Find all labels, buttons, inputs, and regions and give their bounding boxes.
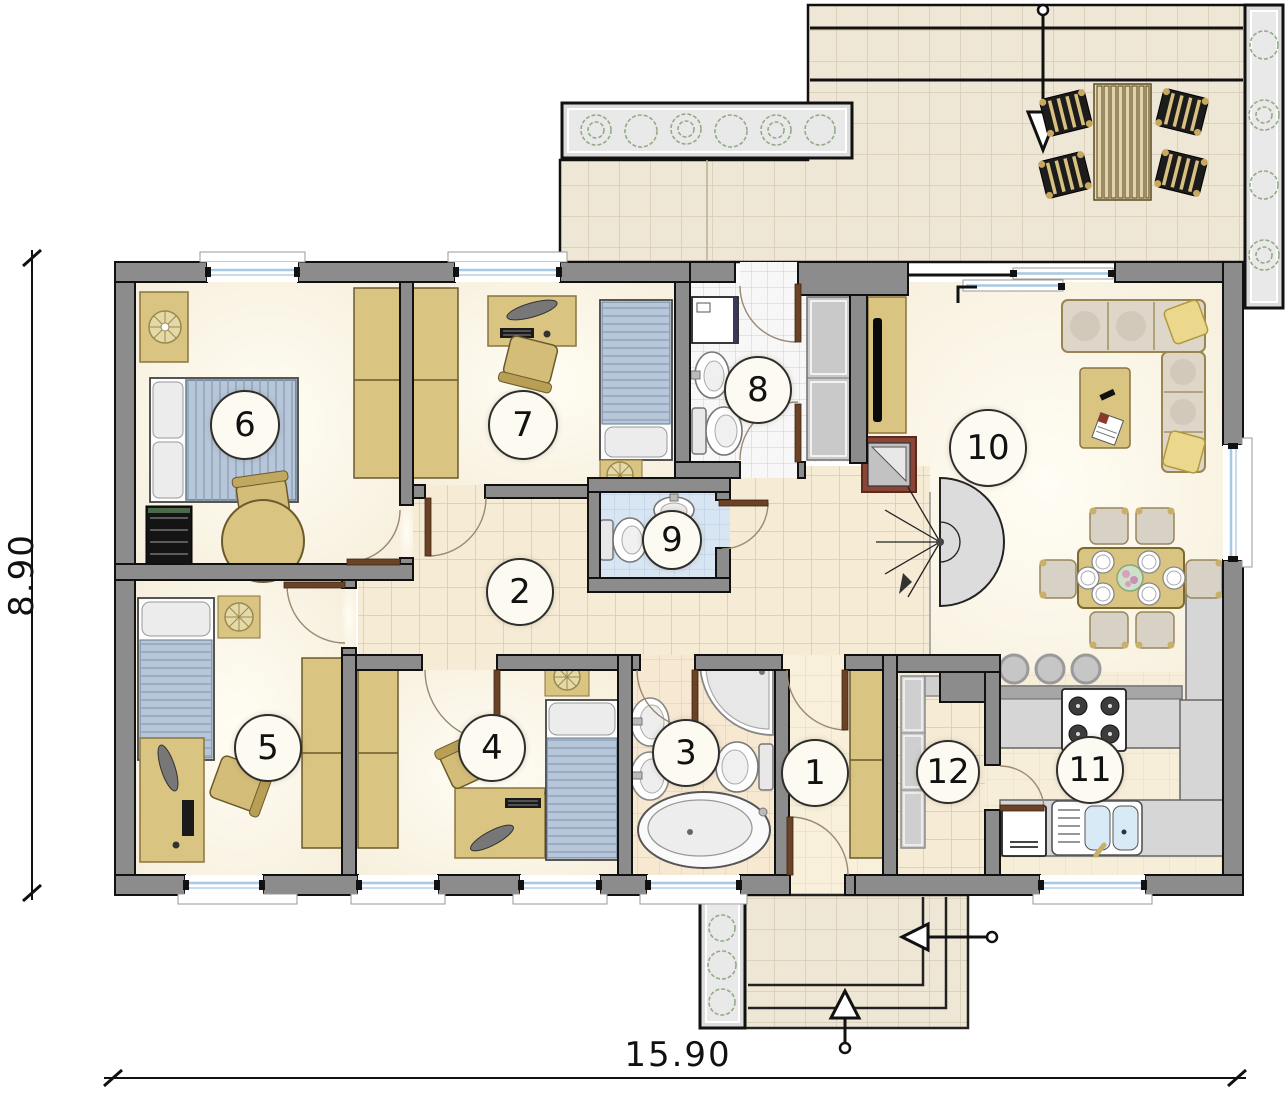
window — [1033, 875, 1152, 904]
window — [200, 252, 305, 282]
room-label-10: 10 — [949, 409, 1027, 487]
bar-stools — [1000, 655, 1100, 683]
desk — [140, 738, 204, 862]
planter-right — [1245, 5, 1283, 308]
room-label-8: 8 — [724, 356, 792, 424]
bathtub — [638, 792, 770, 868]
counter — [1180, 700, 1223, 802]
mouse-icon — [544, 331, 551, 338]
floor-plan: 1 2 3 4 5 6 7 8 9 10 11 12 8.90 15.90 — [0, 0, 1287, 1096]
single-bed — [546, 700, 618, 860]
planter-top — [562, 103, 852, 158]
room-label-5: 5 — [234, 714, 302, 782]
window — [448, 252, 567, 282]
centerpiece — [1117, 565, 1143, 591]
wardrobe — [354, 288, 400, 478]
keyboard-icon — [182, 800, 194, 836]
terrace-table — [1094, 84, 1151, 200]
single-bed — [600, 300, 672, 460]
lamp-icon — [149, 311, 181, 343]
window — [640, 875, 747, 904]
tv-icon — [873, 318, 882, 422]
wardrobe — [413, 288, 458, 478]
dimension-height: 8.90 — [2, 533, 42, 617]
room-label-4: 4 — [458, 714, 526, 782]
fireplace — [862, 437, 916, 492]
room-label-9: 9 — [642, 510, 702, 570]
window — [1223, 438, 1252, 567]
corridor-floor — [730, 466, 930, 655]
room-label-2: 2 — [486, 558, 554, 626]
fridge — [1002, 806, 1046, 856]
entrance-porch — [700, 895, 997, 1053]
room-label-6: 6 — [210, 390, 280, 460]
room-label-7: 7 — [488, 390, 558, 460]
coffee-table — [1080, 368, 1130, 448]
single-bed — [138, 598, 214, 760]
hall-1-furniture — [850, 662, 883, 858]
room-label-3: 3 — [652, 719, 720, 787]
window — [351, 875, 445, 904]
window — [513, 875, 607, 904]
toilet — [716, 742, 773, 792]
room-label-1: 1 — [781, 739, 849, 807]
room-label-12: 12 — [916, 740, 980, 804]
porch-planter — [700, 898, 745, 1028]
room-label-11: 11 — [1056, 736, 1124, 804]
corridor-floor — [588, 592, 730, 655]
lamp-icon — [225, 603, 253, 631]
keyboard-icon — [505, 798, 541, 808]
dresser — [146, 506, 192, 568]
counter — [1186, 588, 1223, 714]
toilet — [600, 518, 647, 562]
mouse-icon — [173, 842, 180, 849]
storage-cabinet — [807, 297, 850, 460]
kitchen-sink — [1052, 801, 1142, 855]
dimension-width: 15.90 — [624, 1035, 731, 1075]
corridor-floor — [358, 580, 413, 655]
